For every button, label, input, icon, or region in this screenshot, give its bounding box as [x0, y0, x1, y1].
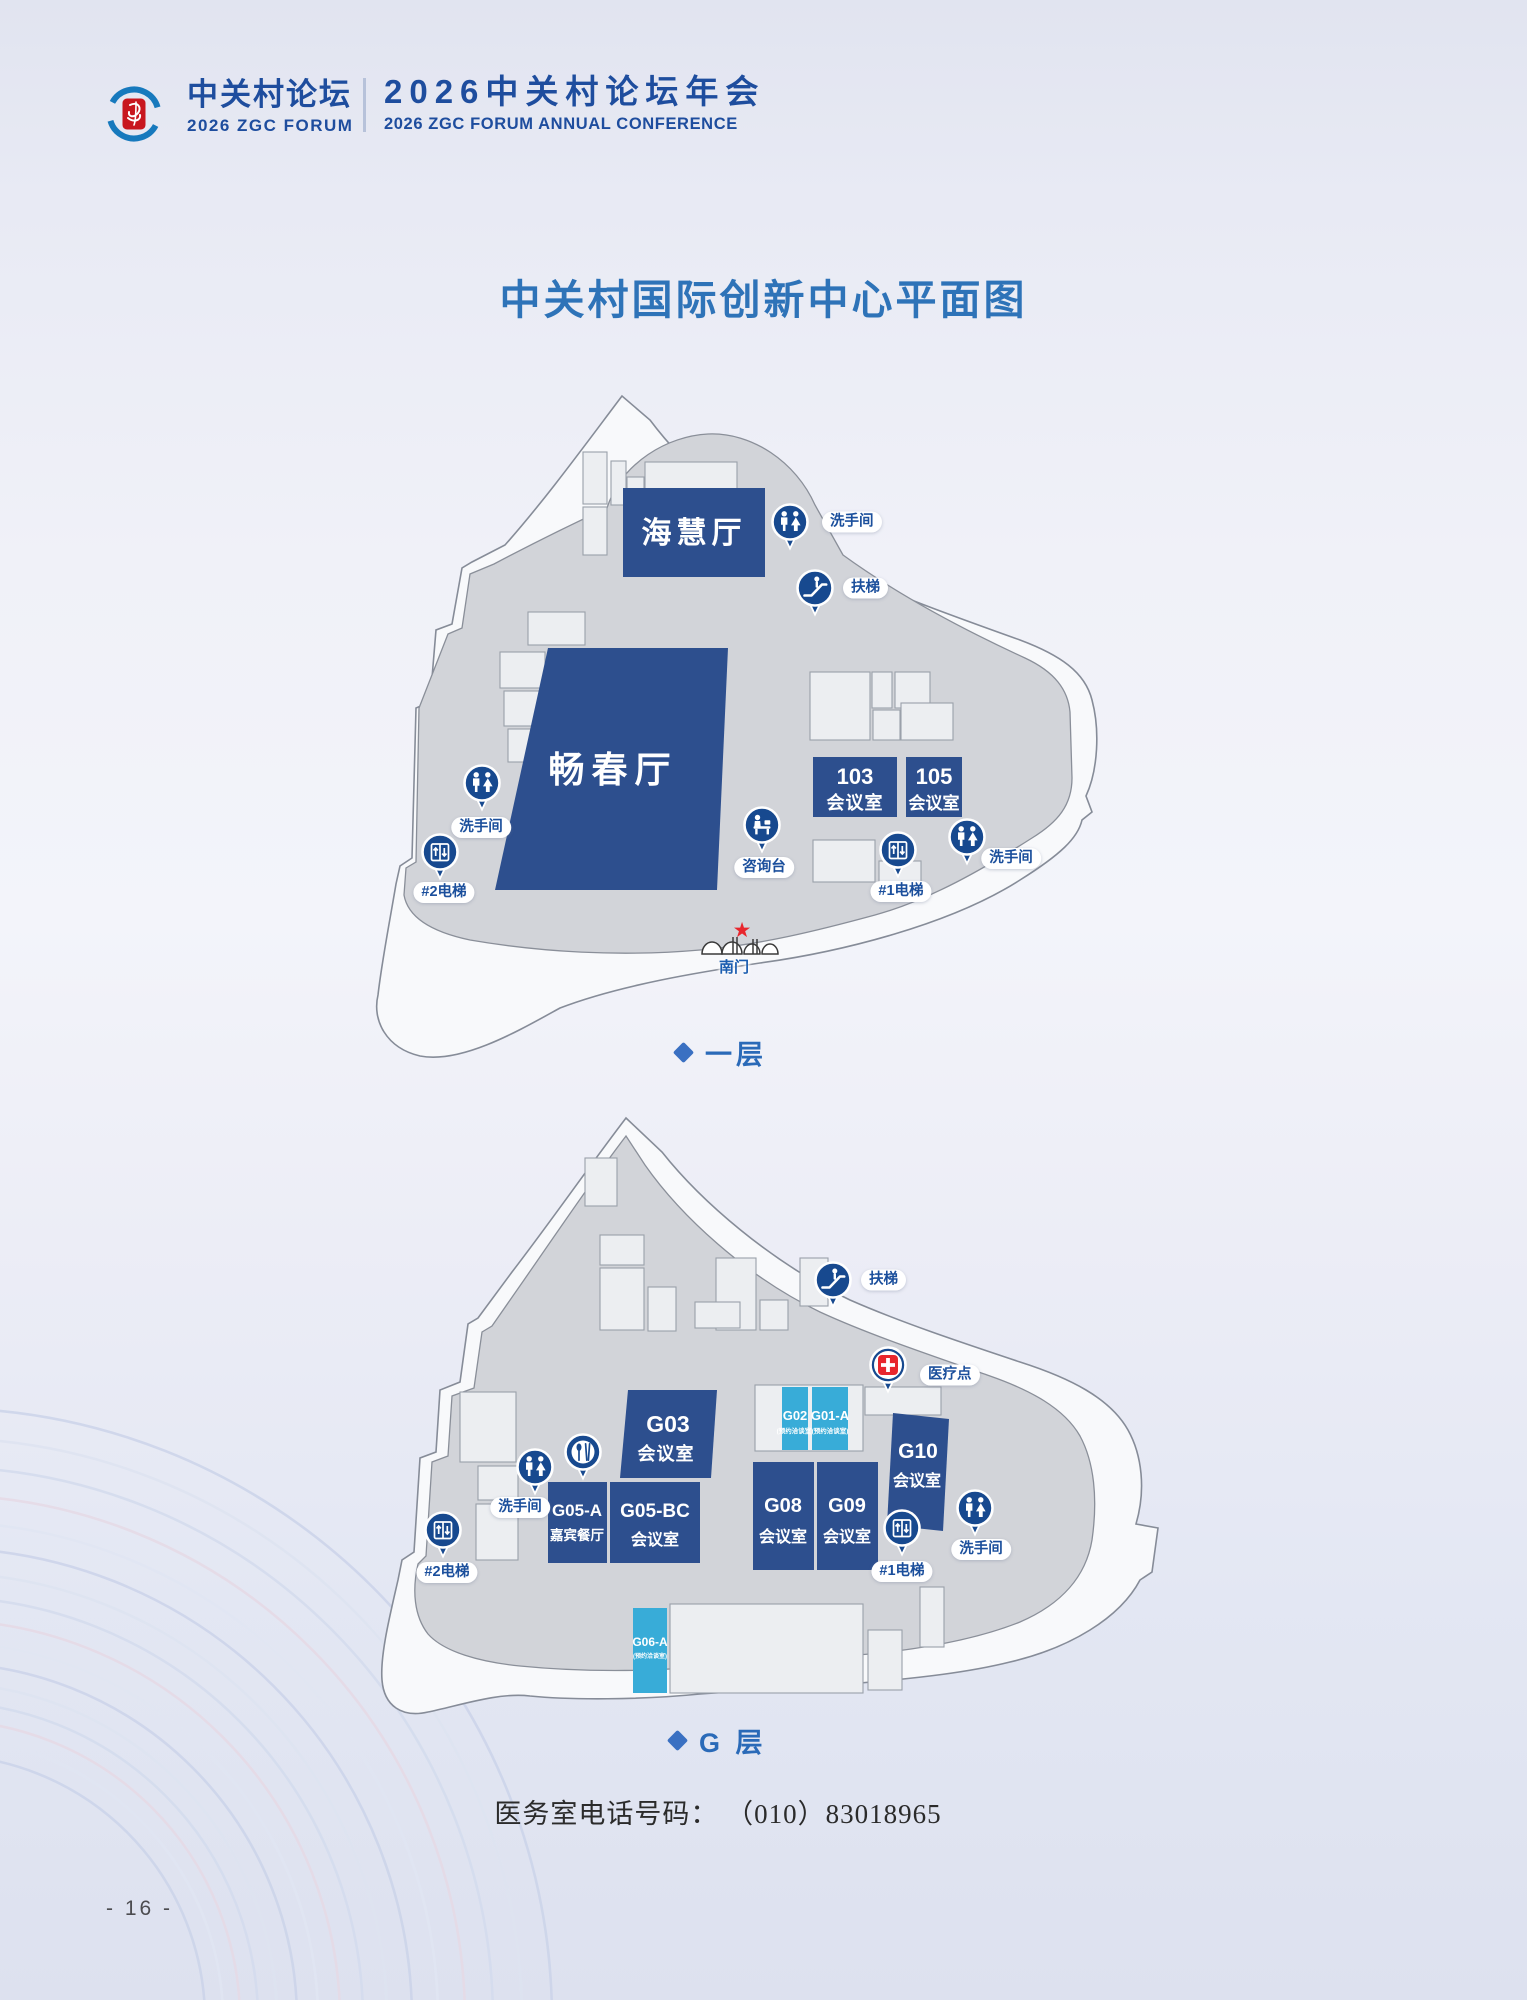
room-g05a-name: G05-A — [552, 1501, 602, 1520]
pin-label-restroom-right: 洗手间 — [981, 848, 1041, 869]
floor1-label: 一层 — [676, 1033, 767, 1072]
floorG-label-text: G 层 — [699, 1721, 767, 1760]
room-g10-name: G10 — [898, 1440, 938, 1463]
south-gate-label: 南门 — [719, 956, 749, 977]
floor-plans: 海慧厅 畅春厅 103 会议室 105 会议室 ★ — [0, 0, 1527, 2000]
room-g03-type: 会议室 — [638, 1443, 695, 1464]
page-number: - 16 - — [106, 1897, 173, 1921]
pin-label-elevator-2: #2电梯 — [413, 882, 474, 903]
room-g06a-name: G06-A — [632, 1635, 668, 1649]
room-g08-type: 会议室 — [759, 1527, 807, 1546]
pin-label-elevator-1-g: #1电梯 — [871, 1561, 932, 1582]
pin-label-restroom-top: 洗手间 — [822, 512, 882, 533]
room-g05bc — [610, 1482, 700, 1563]
room-haihui-label: 海慧厅 — [642, 517, 747, 550]
room-g05a-type: 嘉宾餐厅 — [549, 1527, 604, 1543]
floor1-label-text: 一层 — [705, 1033, 767, 1072]
room-g02-name: G02 — [783, 1408, 808, 1423]
pin-label-restroom-right-g: 洗手间 — [951, 1539, 1011, 1560]
room-changchun-label: 畅春厅 — [548, 749, 677, 790]
room-g02-sub: (预约洽谈室) — [777, 1426, 814, 1435]
room-g09-type: 会议室 — [823, 1527, 871, 1546]
room-g03-name: G03 — [646, 1411, 689, 1437]
room-g06a — [633, 1608, 667, 1693]
room-103-number: 103 — [837, 764, 874, 789]
south-gate-star-icon: ★ — [733, 919, 752, 942]
pin-label-escalator: 扶梯 — [843, 578, 888, 599]
pin-label-medical: 医疗点 — [920, 1365, 980, 1386]
room-g08-name: G08 — [764, 1495, 802, 1517]
medical-phone: 医务室电话号码： （010）83018965 — [494, 1792, 941, 1831]
pin-label-elevator-1: #1电梯 — [870, 881, 931, 902]
room-105-type: 会议室 — [909, 793, 960, 813]
pin-label-restroom-left: 洗手间 — [451, 817, 511, 838]
pin-label-info-desk: 咨询台 — [734, 857, 794, 878]
floorG-plan: G03 会议室 G02 (预约洽谈室) G01-A (预约洽谈室) G10 会议… — [382, 1118, 1158, 1714]
pin-label-elevator-2-g: #2电梯 — [416, 1562, 477, 1583]
room-g10-type: 会议室 — [893, 1471, 941, 1490]
room-105-number: 105 — [916, 764, 953, 789]
pin-label-escalator-g: 扶梯 — [861, 1270, 906, 1291]
room-g05bc-type: 会议室 — [631, 1530, 679, 1549]
room-g06a-sub: (预约洽谈室) — [633, 1652, 667, 1660]
room-g01a-name: G01-A — [811, 1408, 850, 1423]
room-g09-name: G09 — [828, 1495, 866, 1517]
room-g01a-sub: (预约洽谈室) — [812, 1426, 849, 1435]
handbook-page: 中关村论坛 2026 ZGC FORUM 2026中关村论坛年会 2026 ZG… — [0, 0, 1527, 2000]
room-103-type: 会议室 — [827, 792, 884, 813]
room-g05bc-name: G05-BC — [620, 1501, 690, 1522]
floorG-label: G 层 — [670, 1721, 767, 1760]
diamond-icon — [673, 1042, 694, 1063]
pin-label-restroom-left-g: 洗手间 — [490, 1497, 550, 1518]
room-g05a — [548, 1482, 607, 1563]
diamond-icon — [667, 1730, 688, 1751]
